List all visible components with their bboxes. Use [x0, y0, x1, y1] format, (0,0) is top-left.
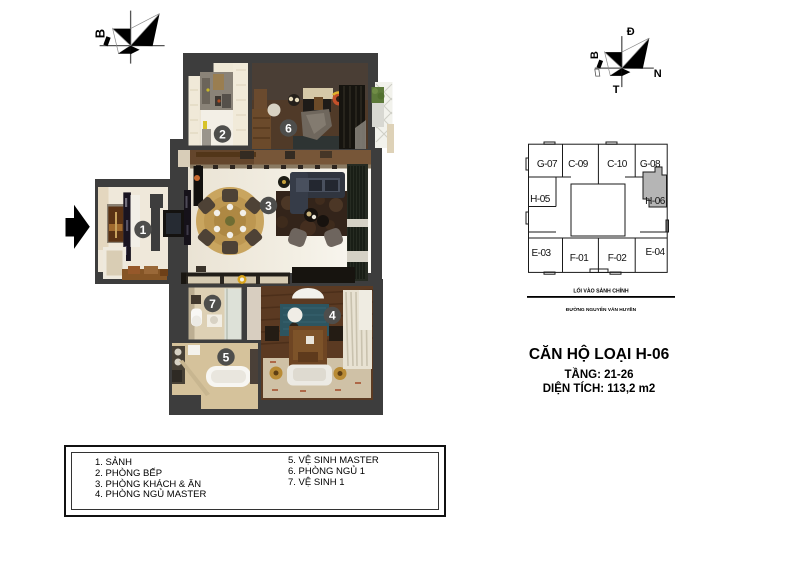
- svg-text:7: 7: [209, 297, 216, 311]
- svg-text:C-10: C-10: [607, 159, 628, 170]
- svg-text:2: 2: [219, 127, 226, 141]
- svg-text:H-05: H-05: [530, 194, 551, 205]
- svg-text:3: 3: [265, 199, 272, 213]
- svg-text:E-04: E-04: [645, 247, 665, 258]
- svg-text:C-09: C-09: [568, 159, 589, 170]
- svg-text:Đ: Đ: [627, 26, 635, 38]
- svg-text:ĐƯỜNG NGUYỄN VĂN HUYỀN: ĐƯỜNG NGUYỄN VĂN HUYỀN: [566, 305, 637, 313]
- svg-text:F-01: F-01: [570, 253, 590, 264]
- svg-text:B: B: [589, 51, 601, 59]
- svg-text:5: 5: [223, 350, 230, 364]
- svg-text:G-08: G-08: [640, 159, 661, 170]
- svg-text:T: T: [613, 84, 620, 96]
- svg-text:H-06: H-06: [645, 196, 666, 207]
- svg-text:B: B: [93, 29, 108, 38]
- svg-text:G-07: G-07: [537, 159, 558, 170]
- svg-text:F-02: F-02: [608, 253, 628, 264]
- svg-text:LỐI VÀO SẢNH CHÍNH: LỐI VÀO SẢNH CHÍNH: [573, 287, 629, 295]
- svg-text:1: 1: [140, 223, 147, 237]
- svg-text:E-03: E-03: [531, 248, 551, 259]
- svg-text:4: 4: [329, 309, 336, 323]
- svg-text:N: N: [654, 68, 662, 80]
- svg-text:6: 6: [285, 121, 292, 135]
